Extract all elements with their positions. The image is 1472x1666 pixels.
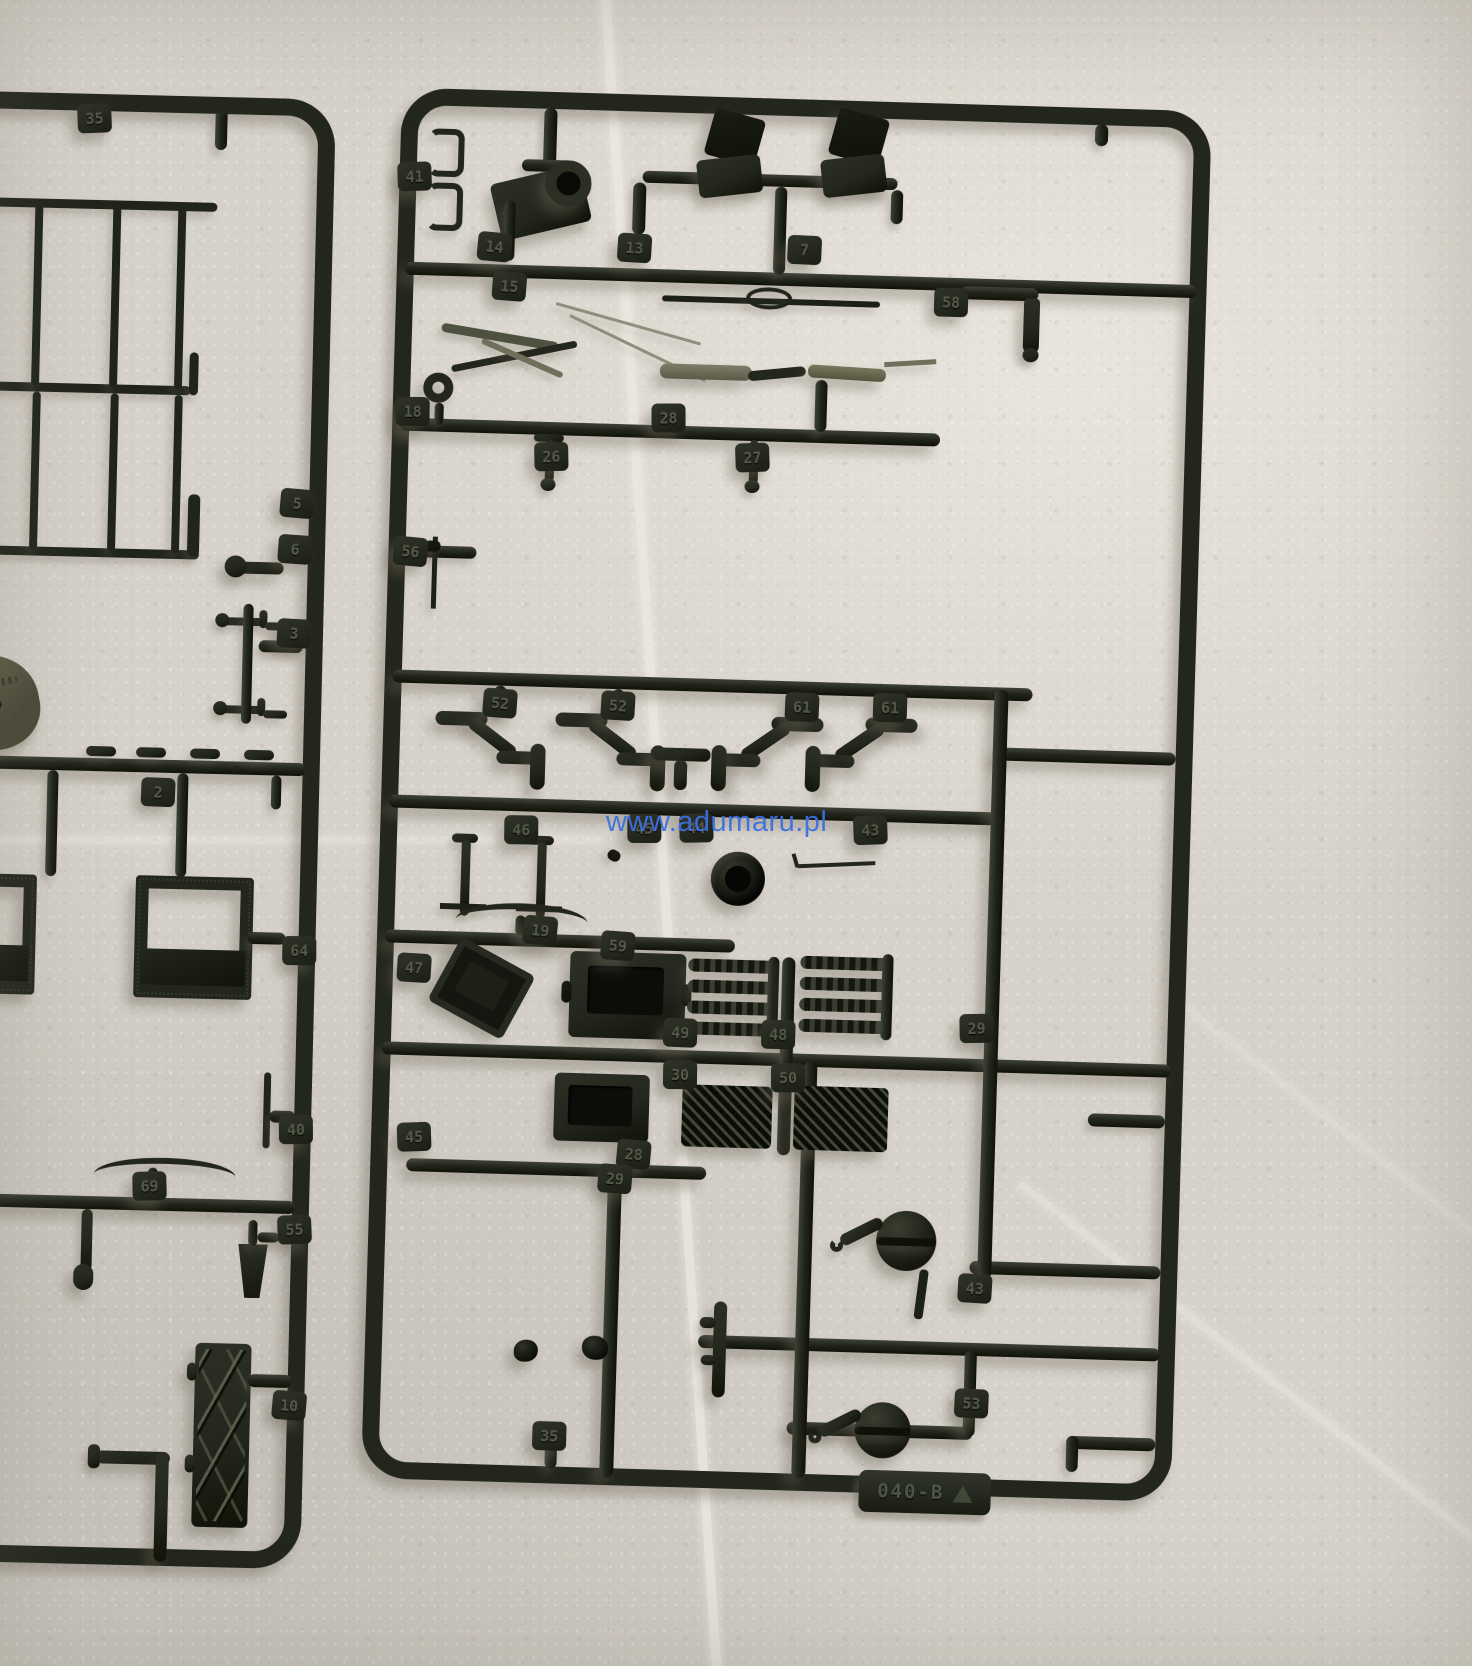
part-number-tab: 13: [617, 232, 653, 263]
mold-code-text: 040-B: [877, 1480, 945, 1504]
part-number-tab: 45: [397, 1122, 432, 1152]
part-number-tab: 56: [392, 535, 429, 567]
spare-track-part: [800, 977, 888, 993]
box-clip: [561, 981, 572, 1003]
part-number-tab: 29: [959, 1014, 994, 1044]
seat-cushion: [696, 154, 764, 199]
wire-clip-part: [426, 182, 463, 231]
sprue-runner: [434, 403, 444, 425]
center-link-part: [673, 760, 687, 790]
part-number-tab: 61: [873, 693, 908, 723]
equipment-box-part: [553, 1072, 650, 1143]
part-number-tab: 18: [395, 397, 429, 426]
spare-track-part: [686, 1021, 772, 1037]
recycle-icon: [952, 1485, 972, 1503]
tread-plate-part: [681, 1084, 773, 1149]
suspension-arm-part: [797, 712, 917, 801]
spare-track-part: [800, 956, 888, 972]
seat-cushion: [820, 154, 888, 199]
part-number-tab: 41: [397, 161, 432, 191]
box-recess: [568, 1085, 633, 1127]
part-number-tab: 27: [735, 442, 770, 472]
sprue-runner: [1066, 1436, 1155, 1452]
spare-track-part: [687, 1000, 773, 1016]
part-number-tab: 59: [600, 930, 636, 962]
arm-axle-boss: [529, 744, 545, 790]
part-number-tab: 19: [522, 914, 559, 946]
sprue-runner: [1065, 1436, 1078, 1472]
watermark-text: www.adumaru.pl: [606, 806, 827, 839]
part-number-tab: 58: [934, 287, 969, 317]
part-number-tab: 43: [853, 815, 888, 845]
cylinder-part: [660, 363, 752, 381]
spare-track-part: [799, 998, 887, 1014]
part-number-tab: 7: [787, 235, 822, 266]
drum-bore: [725, 865, 752, 892]
part-number-tab: 47: [396, 952, 432, 983]
sprue-runner: [1088, 1113, 1165, 1128]
sprue-runner: [814, 380, 828, 432]
part-number-tab: 29: [597, 1163, 633, 1195]
part-number-tab: 52: [482, 687, 518, 719]
sprue-runner: [543, 108, 558, 166]
part-number-tab: 46: [504, 815, 538, 844]
part-number-tab: 35: [532, 1421, 567, 1451]
box-lid: [454, 961, 509, 1012]
part-number-tab: 14: [476, 231, 513, 263]
mold-code-plate: 040-B: [858, 1470, 991, 1516]
part-number-tab: 15: [491, 270, 527, 302]
hook-rod-part: [1023, 298, 1041, 354]
spare-track-part: [687, 979, 773, 995]
photo-canvas: 35563286440695510 040-B 4114151375818282…: [0, 0, 1472, 1666]
part-number-tab: 26: [534, 442, 569, 472]
part-number-tab: 52: [600, 690, 636, 721]
arm-axle-boss: [805, 746, 821, 792]
spare-track-part: [798, 1019, 886, 1035]
part-number-tab: 49: [663, 1017, 698, 1048]
part-number-tab: 50: [771, 1063, 805, 1092]
box-recess: [587, 965, 664, 1015]
part-number-tab: 43: [957, 1273, 993, 1304]
t-pin-nub: [700, 1317, 716, 1328]
part-number-tab: 28: [652, 403, 686, 432]
sprue-runner: [632, 182, 647, 234]
tread-plate-part: [793, 1086, 889, 1153]
part-number-tab: 53: [954, 1388, 989, 1419]
loose-knob-part: [582, 1335, 609, 1360]
spare-track-part: [688, 958, 774, 974]
t-pin-nub: [700, 1355, 715, 1365]
arm-axle-boss: [710, 745, 726, 791]
part-number-tab: 30: [663, 1060, 697, 1089]
sprue-runner: [1095, 124, 1109, 146]
seat-part: [697, 112, 774, 202]
part-number-tab: 48: [761, 1020, 796, 1050]
wire-clip-part: [428, 128, 465, 177]
suspension-arm-part: [433, 707, 553, 796]
seat-part: [821, 112, 898, 202]
part-number-tab: 61: [784, 692, 819, 723]
